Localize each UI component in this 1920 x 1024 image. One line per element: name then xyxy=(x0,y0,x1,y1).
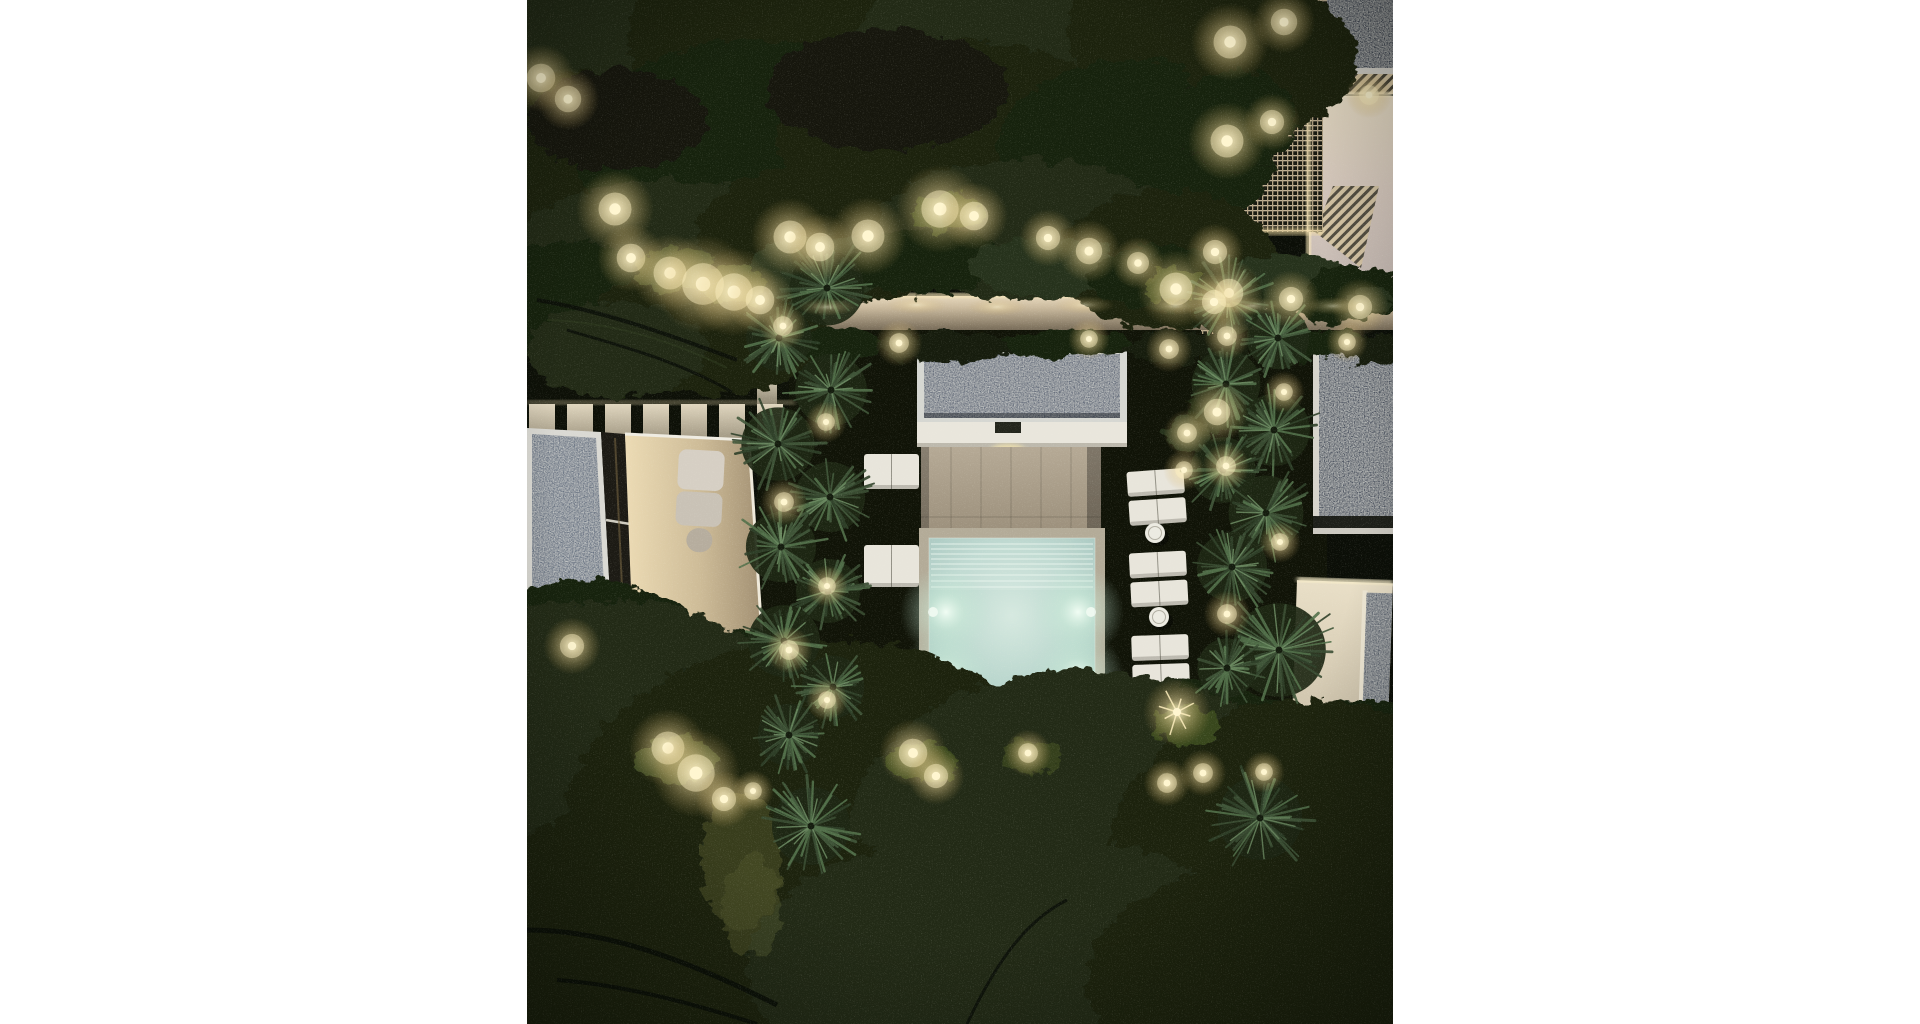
vignette xyxy=(527,0,1393,1024)
aerial-villa-photo xyxy=(527,0,1393,1024)
villa-render-svg xyxy=(527,0,1393,1024)
page xyxy=(0,0,1920,1024)
